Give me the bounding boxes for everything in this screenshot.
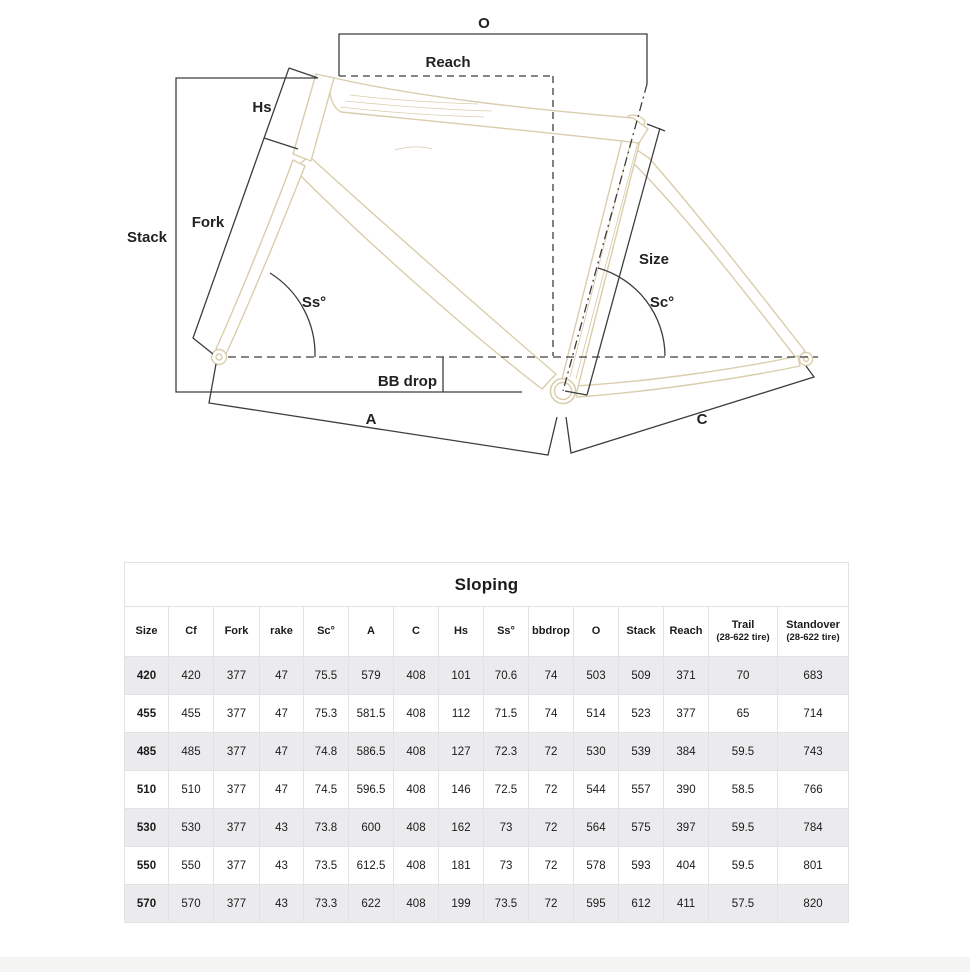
table-cell: 503 — [574, 657, 619, 695]
table-cell: 595 — [574, 885, 619, 923]
table-cell: 408 — [394, 885, 439, 923]
table-cell: 714 — [778, 695, 849, 733]
table-row: 4554553774775.3581.540811271.57451452337… — [125, 695, 849, 733]
label-size: Size — [639, 251, 669, 268]
table-cell: 377 — [214, 657, 260, 695]
down-tube — [294, 156, 556, 389]
table-cell: 557 — [619, 771, 664, 809]
table-cell: 420 — [169, 657, 214, 695]
chain-stays — [574, 356, 800, 397]
column-header: Reach — [664, 607, 709, 657]
table-row: 5505503774373.5612.540818173725785934045… — [125, 847, 849, 885]
table-row: 4204203774775.557940810170.6745035093717… — [125, 657, 849, 695]
table-cell: 408 — [394, 771, 439, 809]
label-fork: Fork — [192, 214, 225, 231]
table-cell: 47 — [260, 695, 304, 733]
geometry-table: Sloping SizeCfForkrakeSc°ACHsSs°bbdropOS… — [124, 562, 849, 923]
column-header: rake — [260, 607, 304, 657]
table-cell: 523 — [619, 695, 664, 733]
head-tube — [293, 74, 334, 161]
table-cell: 72 — [529, 733, 574, 771]
column-header: Stack — [619, 607, 664, 657]
fork-blade — [216, 160, 305, 354]
table-cell: 530 — [169, 809, 214, 847]
table-cell: 397 — [664, 809, 709, 847]
table-cell: 181 — [439, 847, 484, 885]
table-cell: 408 — [394, 847, 439, 885]
label-o: O — [478, 15, 490, 32]
table-cell: 683 — [778, 657, 849, 695]
table-cell: 72 — [529, 771, 574, 809]
column-header-subtext: (28-622 tire) — [709, 632, 777, 644]
column-header: Hs — [439, 607, 484, 657]
table-row: 5705703774373.362240819973.5725956124115… — [125, 885, 849, 923]
table-cell: 74.5 — [304, 771, 349, 809]
table-cell: 575 — [619, 809, 664, 847]
table-cell: 581.5 — [349, 695, 394, 733]
label-c: C — [697, 411, 708, 428]
table-cell: 485 — [169, 733, 214, 771]
table-cell: 564 — [574, 809, 619, 847]
table-cell: 578 — [574, 847, 619, 885]
page-bottom-strip — [0, 957, 970, 972]
column-header: Fork — [214, 607, 260, 657]
table-cell: 73.5 — [484, 885, 529, 923]
table-title-row: Sloping — [125, 563, 849, 607]
table-cell: 47 — [260, 733, 304, 771]
o-dimension-bracket — [339, 34, 647, 84]
label-bb-drop: BB drop — [378, 373, 437, 390]
table-cell: 74 — [529, 657, 574, 695]
table-cell: 509 — [619, 657, 664, 695]
geometry-svg: O Reach Hs Fork Stack Size Ss° Sc° BB dr… — [0, 0, 970, 560]
column-header: bbdrop — [529, 607, 574, 657]
table-cell: 455 — [169, 695, 214, 733]
table-cell: 72.5 — [484, 771, 529, 809]
table-cell: 600 — [349, 809, 394, 847]
column-header-row: SizeCfForkrakeSc°ACHsSs°bbdropOStackReac… — [125, 607, 849, 657]
table-cell: 47 — [260, 771, 304, 809]
table-cell: 71.5 — [484, 695, 529, 733]
table-cell: 570 — [169, 885, 214, 923]
ss-angle-arc — [270, 273, 315, 357]
table-cell: 408 — [394, 809, 439, 847]
table-cell: 377 — [214, 695, 260, 733]
table-cell: 74 — [529, 695, 574, 733]
table-cell: 73.8 — [304, 809, 349, 847]
table-cell: 59.5 — [709, 733, 778, 771]
table-cell: 539 — [619, 733, 664, 771]
table-title: Sloping — [125, 563, 849, 607]
table-cell: 784 — [778, 809, 849, 847]
table-cell: 377 — [214, 809, 260, 847]
column-header: A — [349, 607, 394, 657]
table-cell: 74.8 — [304, 733, 349, 771]
table-cell: 593 — [619, 847, 664, 885]
column-header: Cf — [169, 607, 214, 657]
table-cell: 801 — [778, 847, 849, 885]
table-cell: 408 — [394, 733, 439, 771]
column-header: Ss° — [484, 607, 529, 657]
label-reach: Reach — [425, 54, 470, 71]
sc-angle-arc — [598, 268, 665, 356]
label-a: A — [366, 411, 377, 428]
table-cell: 59.5 — [709, 847, 778, 885]
table-cell: 162 — [439, 809, 484, 847]
table-cell: 73.3 — [304, 885, 349, 923]
table-cell: 586.5 — [349, 733, 394, 771]
table-cell: 404 — [664, 847, 709, 885]
hs-bottom-tick — [264, 138, 298, 149]
table-cell: 43 — [260, 885, 304, 923]
table-cell: 72.3 — [484, 733, 529, 771]
column-header: O — [574, 607, 619, 657]
table-cell: 820 — [778, 885, 849, 923]
table-cell: 408 — [394, 657, 439, 695]
row-size-header: 510 — [125, 771, 169, 809]
table-cell: 43 — [260, 847, 304, 885]
table-cell: 514 — [574, 695, 619, 733]
table-cell: 72 — [529, 885, 574, 923]
label-stack: Stack — [127, 229, 168, 246]
row-size-header: 550 — [125, 847, 169, 885]
column-header: Standover(28-622 tire) — [778, 607, 849, 657]
table-cell: 72 — [529, 809, 574, 847]
table-cell: 73 — [484, 847, 529, 885]
table-cell: 612 — [619, 885, 664, 923]
label-sc: Sc° — [650, 294, 674, 311]
table-row: 5105103774774.5596.540814672.57254455739… — [125, 771, 849, 809]
table-cell: 596.5 — [349, 771, 394, 809]
table-cell: 766 — [778, 771, 849, 809]
frame-geometry-diagram: O Reach Hs Fork Stack Size Ss° Sc° BB dr… — [0, 0, 970, 560]
front-dropout-hole — [216, 354, 222, 360]
table-cell: 199 — [439, 885, 484, 923]
table-cell: 58.5 — [709, 771, 778, 809]
row-size-header: 530 — [125, 809, 169, 847]
table-cell: 377 — [214, 885, 260, 923]
column-header: Size — [125, 607, 169, 657]
table-cell: 550 — [169, 847, 214, 885]
table-cell: 75.5 — [304, 657, 349, 695]
table-cell: 72 — [529, 847, 574, 885]
table-cell: 384 — [664, 733, 709, 771]
table-cell: 390 — [664, 771, 709, 809]
table-cell: 73 — [484, 809, 529, 847]
table-cell: 59.5 — [709, 809, 778, 847]
table-cell: 47 — [260, 657, 304, 695]
table-cell: 75.3 — [304, 695, 349, 733]
row-size-header: 455 — [125, 695, 169, 733]
table-cell: 65 — [709, 695, 778, 733]
diagram-labels: O Reach Hs Fork Stack Size Ss° Sc° BB dr… — [127, 15, 708, 428]
table-cell: 377 — [214, 771, 260, 809]
table-cell: 377 — [214, 847, 260, 885]
label-ss: Ss° — [302, 294, 326, 311]
seat-tube — [560, 115, 645, 391]
row-size-header: 420 — [125, 657, 169, 695]
table-cell: 510 — [169, 771, 214, 809]
row-size-header: 485 — [125, 733, 169, 771]
hs-top-tick — [289, 68, 318, 78]
table-cell: 612.5 — [349, 847, 394, 885]
table-cell: 146 — [439, 771, 484, 809]
top-tube — [329, 77, 648, 143]
table-cell: 43 — [260, 809, 304, 847]
table-row: 5305303774373.8600408162737256457539759.… — [125, 809, 849, 847]
table-cell: 579 — [349, 657, 394, 695]
column-header: C — [394, 607, 439, 657]
table-cell: 101 — [439, 657, 484, 695]
table-row: 4854853774774.8586.540812772.37253053938… — [125, 733, 849, 771]
column-header-subtext: (28-622 tire) — [778, 632, 848, 644]
table-cell: 377 — [214, 733, 260, 771]
table-cell: 112 — [439, 695, 484, 733]
table-cell: 70.6 — [484, 657, 529, 695]
table-cell: 544 — [574, 771, 619, 809]
table-cell: 73.5 — [304, 847, 349, 885]
table-cell: 622 — [349, 885, 394, 923]
row-size-header: 570 — [125, 885, 169, 923]
table-cell: 530 — [574, 733, 619, 771]
bike-frame-drawing — [212, 74, 813, 404]
table-cell: 743 — [778, 733, 849, 771]
column-header: Trail(28-622 tire) — [709, 607, 778, 657]
table-cell: 408 — [394, 695, 439, 733]
table-cell: 371 — [664, 657, 709, 695]
column-header: Sc° — [304, 607, 349, 657]
label-hs: Hs — [252, 99, 271, 116]
table-cell: 411 — [664, 885, 709, 923]
table-cell: 377 — [664, 695, 709, 733]
table-cell: 57.5 — [709, 885, 778, 923]
table-cell: 70 — [709, 657, 778, 695]
table-cell: 127 — [439, 733, 484, 771]
